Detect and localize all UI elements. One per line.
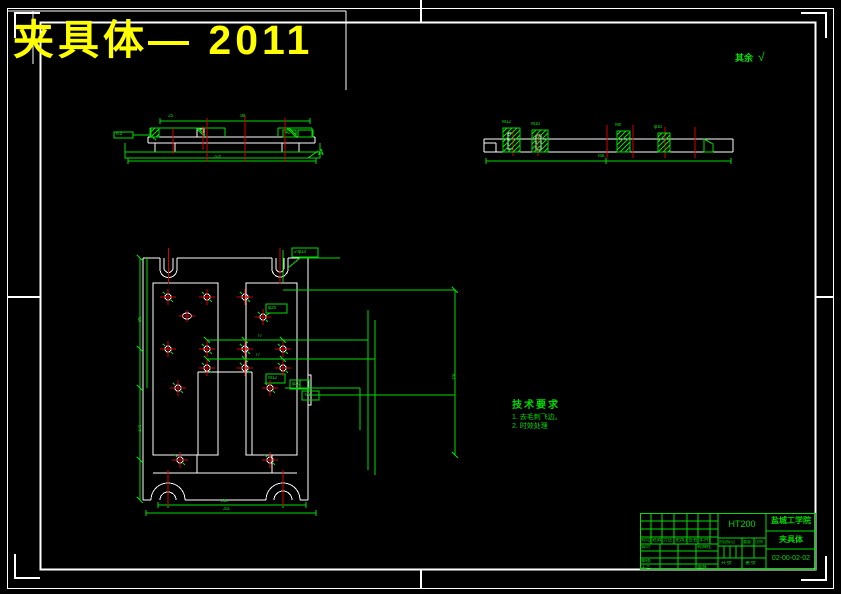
- front-dim: 318: [214, 155, 221, 160]
- surface-finish-note: 其余: [735, 54, 753, 63]
- side-dim: 690: [598, 154, 605, 159]
- plan-label: 60: [305, 393, 319, 398]
- front-leader-note: 6.3: [116, 132, 122, 137]
- tb-scale-label: 比例: [755, 540, 766, 544]
- tb-weight-label: 重量: [743, 540, 754, 544]
- side-dim: M10: [531, 122, 540, 127]
- plan-dim: 230: [221, 499, 228, 504]
- tb-standard-label: 标准化: [697, 545, 717, 550]
- company-name: 盐城工学院: [766, 517, 816, 525]
- cad-drawing-sheet: 夹具体— 2011 其余 √ 6.3 25 98 40 318 A M12 M1…: [0, 0, 841, 594]
- tb-label: 标记: [641, 538, 651, 543]
- front-dim: 98: [240, 114, 245, 119]
- drawing-canvas: [0, 0, 841, 594]
- side-view: [484, 125, 733, 164]
- tech-req-item: 2. 时效处理: [512, 423, 548, 430]
- side-dim: M12: [502, 120, 511, 125]
- tb-label: 分区: [663, 538, 674, 543]
- view-arrow-label: A: [318, 149, 324, 157]
- plan-dim: 77: [255, 353, 260, 358]
- material-value: HT200: [718, 520, 766, 529]
- plan-dim: 150: [452, 373, 457, 380]
- tb-approve-label: 批准: [697, 565, 717, 570]
- side-dim: M8: [615, 123, 621, 128]
- tb-process-label: 工艺: [641, 565, 659, 570]
- plan-dim: 95: [138, 317, 143, 322]
- plan-label: 2-φ13: [294, 250, 306, 255]
- tb-label: 签名: [688, 538, 698, 543]
- tb-check-label: 审核: [641, 559, 659, 564]
- tb-page-label: 第 张: [745, 561, 765, 566]
- sheet-border: [7, 0, 834, 589]
- tb-stage-label: 阶段标记: [719, 540, 741, 544]
- plan-dim: 77: [257, 334, 262, 339]
- plan-dim: 175: [138, 425, 143, 432]
- tb-label: 年月日: [699, 538, 710, 543]
- tech-req-item: 1. 去毛刺飞边。: [512, 414, 562, 421]
- tb-design-label: 设计: [641, 545, 659, 550]
- front-dim: 40: [285, 131, 290, 136]
- surface-finish-check-icon: √: [758, 51, 765, 63]
- plan-label: φ25: [268, 306, 276, 311]
- side-dim: φ10: [654, 125, 662, 130]
- plan-dim: 310: [223, 507, 230, 512]
- part-name: 夹具体: [766, 536, 816, 544]
- drawing-title: 夹具体— 2011: [13, 20, 313, 61]
- tb-sheets-label: 共 张: [721, 561, 741, 566]
- plan-label: φ20: [292, 382, 308, 387]
- plan-label: M12: [268, 376, 284, 381]
- tb-label: 更改文件号: [675, 538, 687, 543]
- front-dim: 25: [168, 114, 173, 119]
- drawing-number: 02-00-02-02: [766, 555, 816, 562]
- hatch-areas: [151, 128, 670, 152]
- tb-label: 处数: [652, 538, 662, 543]
- tech-req-title: 技术要求: [512, 401, 560, 411]
